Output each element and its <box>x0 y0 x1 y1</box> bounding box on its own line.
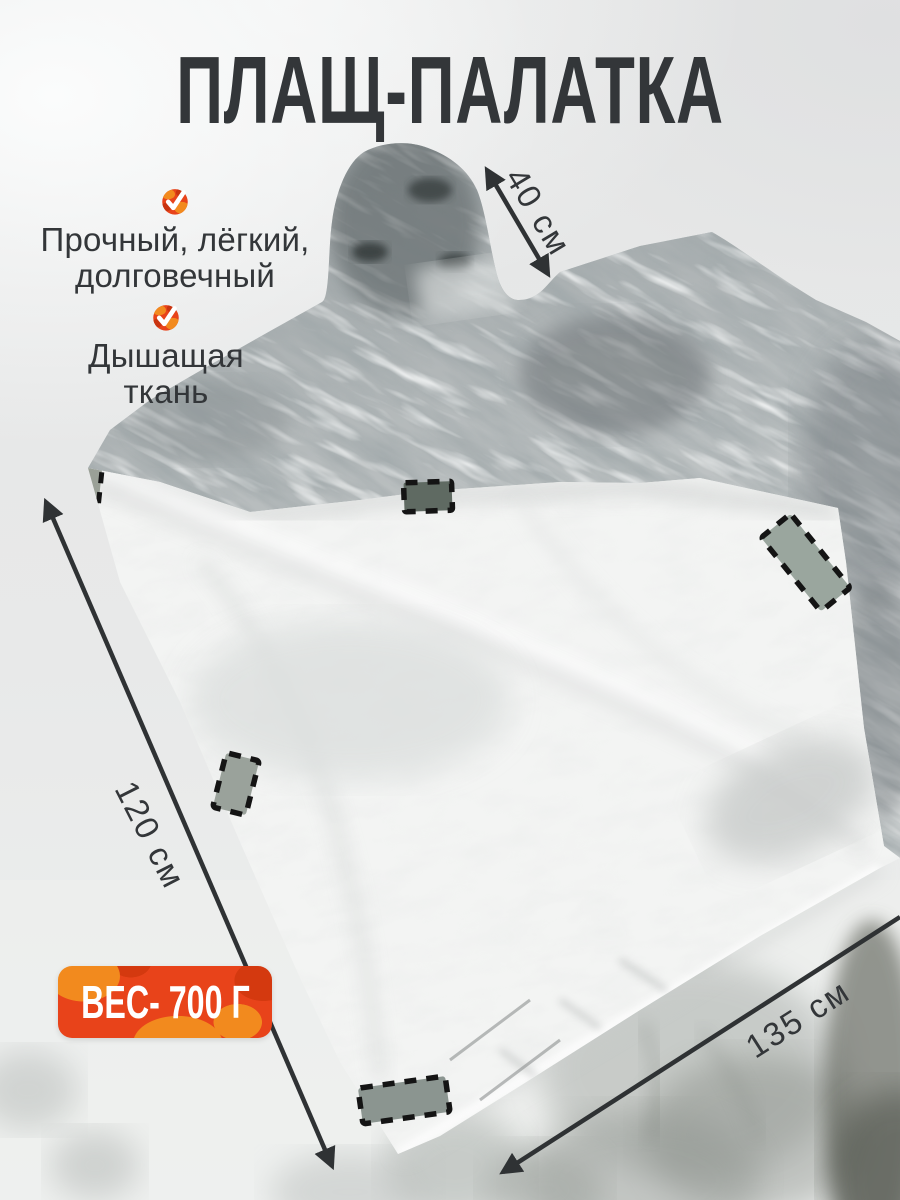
width-dimension-arrow <box>46 502 332 1166</box>
feature-item-breathable: Дышащая ткань <box>10 300 322 409</box>
page-title: ПЛАЩ-ПАЛАТКА <box>144 36 756 146</box>
check-icon <box>158 184 192 218</box>
product-card: ПЛАЩ-ПАЛАТКА Прочный, лёгкий, долговечны… <box>0 0 900 1200</box>
reflective-patch <box>761 514 850 612</box>
reflective-patch <box>71 451 103 508</box>
feature-text: Прочный, лёгкий, долговечный <box>41 222 310 293</box>
feature-text: Дышащая ткань <box>88 338 244 409</box>
hood-shadow <box>330 133 480 317</box>
weight-badge-label: ВЕС- 700 Г <box>81 975 250 1029</box>
fold-highlight <box>92 470 858 832</box>
weight-badge: ВЕС- 700 Г <box>58 966 272 1038</box>
reflective-patch <box>404 481 453 512</box>
dimension-label-hood: 40 см <box>489 147 587 276</box>
reflective-patch <box>358 1076 450 1124</box>
length-dimension-arrow <box>503 917 900 1172</box>
dimension-label-width: 120 см <box>93 748 207 922</box>
dimension-label-length: 135 см <box>715 957 880 1081</box>
reflective-patch <box>213 753 260 816</box>
check-icon <box>149 300 183 334</box>
feature-item-durable: Прочный, лёгкий, долговечный <box>10 184 340 293</box>
